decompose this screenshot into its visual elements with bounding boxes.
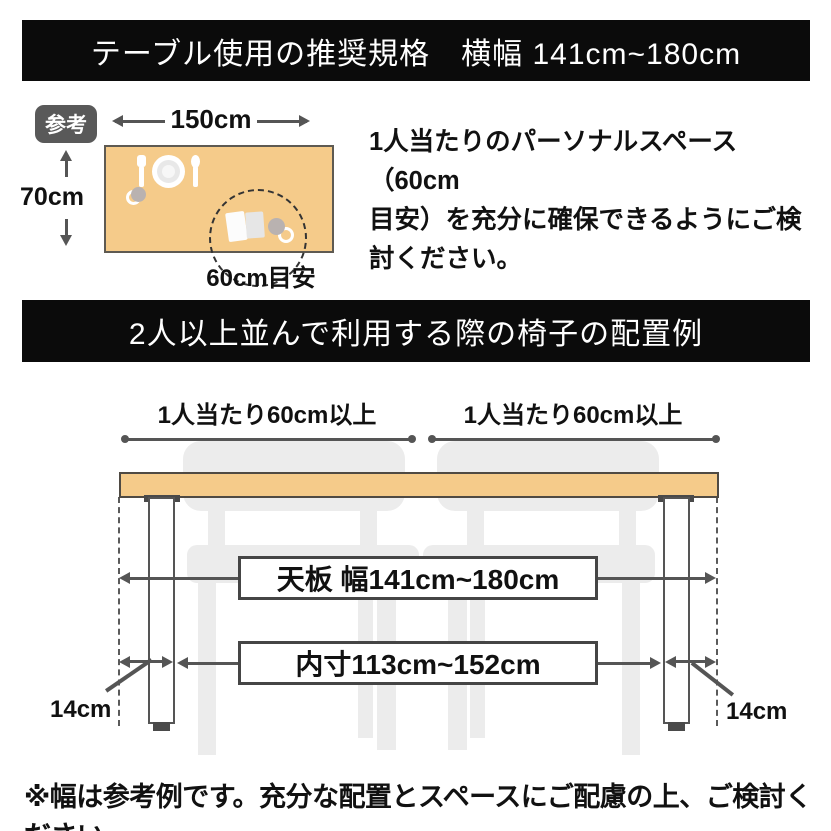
per-person-label-right: 1人当たり60cm以上 xyxy=(427,395,719,430)
arrow-left-icon xyxy=(665,656,676,668)
tabletop-width-box: 天板 幅141cm~180cm xyxy=(238,556,598,600)
inner-width-box: 内寸113cm~152cm xyxy=(238,641,598,685)
dot-icon xyxy=(121,435,129,443)
leg-offset-label-right: 14cm xyxy=(726,698,787,726)
reference-badge: 参考 xyxy=(35,105,97,143)
dot-icon xyxy=(408,435,416,443)
fork-head-icon xyxy=(137,155,146,167)
fork-icon xyxy=(139,166,144,187)
tabletop-width-label: 天板 幅141cm~180cm xyxy=(277,558,560,598)
chair-leg xyxy=(198,580,216,755)
tabletop-arrow-line-right xyxy=(598,577,708,580)
arrow-right-icon xyxy=(650,657,661,669)
arrow-left-icon xyxy=(177,657,188,669)
arrow-left-icon xyxy=(119,572,130,584)
footnote: ※幅は参考例です。充分な配置とスペースにご配慮の上、ご検討ください。 xyxy=(24,775,824,831)
table-leg-left xyxy=(148,497,175,724)
plate-center-icon xyxy=(162,165,175,178)
dot-icon xyxy=(712,435,720,443)
inner-width-label: 内寸113cm~152cm xyxy=(295,643,540,683)
inner-arrow-line-left xyxy=(184,662,238,665)
inner-arrow-line-right xyxy=(598,662,651,665)
depth-dimension-label: 70cm xyxy=(8,183,96,212)
tabletop xyxy=(119,472,719,498)
personal-space-label: 60cm目安 xyxy=(199,258,323,293)
per-person-label-left: 1人当たり60cm以上 xyxy=(121,395,413,430)
measure-line-right-bar xyxy=(432,438,716,441)
width-dimension-150cm: 150cm xyxy=(112,107,310,135)
top-banner: テーブル使用の推奨規格 横幅 141cm~180cm xyxy=(22,20,810,81)
arrow-right-icon xyxy=(705,572,716,584)
table-leg-right xyxy=(663,497,690,724)
reference-badge-label: 参考 xyxy=(45,109,87,139)
width-dimension-label: 150cm xyxy=(165,104,258,134)
spoon-icon xyxy=(193,166,198,187)
arrow-right-icon xyxy=(162,656,173,668)
cup-icon xyxy=(131,187,146,202)
second-banner: 2人以上並んで利用する際の椅子の配置例 xyxy=(22,300,810,362)
dot-icon xyxy=(428,435,436,443)
reference-description: 1人当たりのパーソナルスペース（60cm 目安）を充分に確保できるようにご検 討… xyxy=(369,123,821,279)
measure-line-left-bar xyxy=(125,438,412,441)
chair-leg xyxy=(622,580,640,755)
infographic-root: テーブル使用の推奨規格 横幅 141cm~180cm 参考 150cm 70cm… xyxy=(0,0,831,831)
spoon-head-icon xyxy=(191,155,200,168)
arrow-left-icon xyxy=(119,656,130,668)
measure-line-left xyxy=(121,431,416,447)
leg-offset-label-left: 14cm xyxy=(50,696,111,724)
table-edge-dashed-line-right xyxy=(716,497,718,726)
measure-line-right xyxy=(428,431,720,447)
tabletop-arrow-line-left xyxy=(124,577,238,580)
arrow-right-icon xyxy=(705,656,716,668)
second-banner-title: 2人以上並んで利用する際の椅子の配置例 xyxy=(129,309,703,353)
arrow-down-icon xyxy=(60,235,72,246)
offset-double-arrow-right xyxy=(665,655,716,668)
table-edge-dashed-line-left xyxy=(118,497,120,726)
book-right-page-icon xyxy=(245,211,265,238)
leg-foot-left xyxy=(153,722,170,731)
leg-foot-right xyxy=(668,722,685,731)
depth-dimension-line-top xyxy=(65,159,68,177)
top-banner-title: テーブル使用の推奨規格 横幅 141cm~180cm xyxy=(91,29,741,73)
teacup-icon xyxy=(268,218,285,235)
